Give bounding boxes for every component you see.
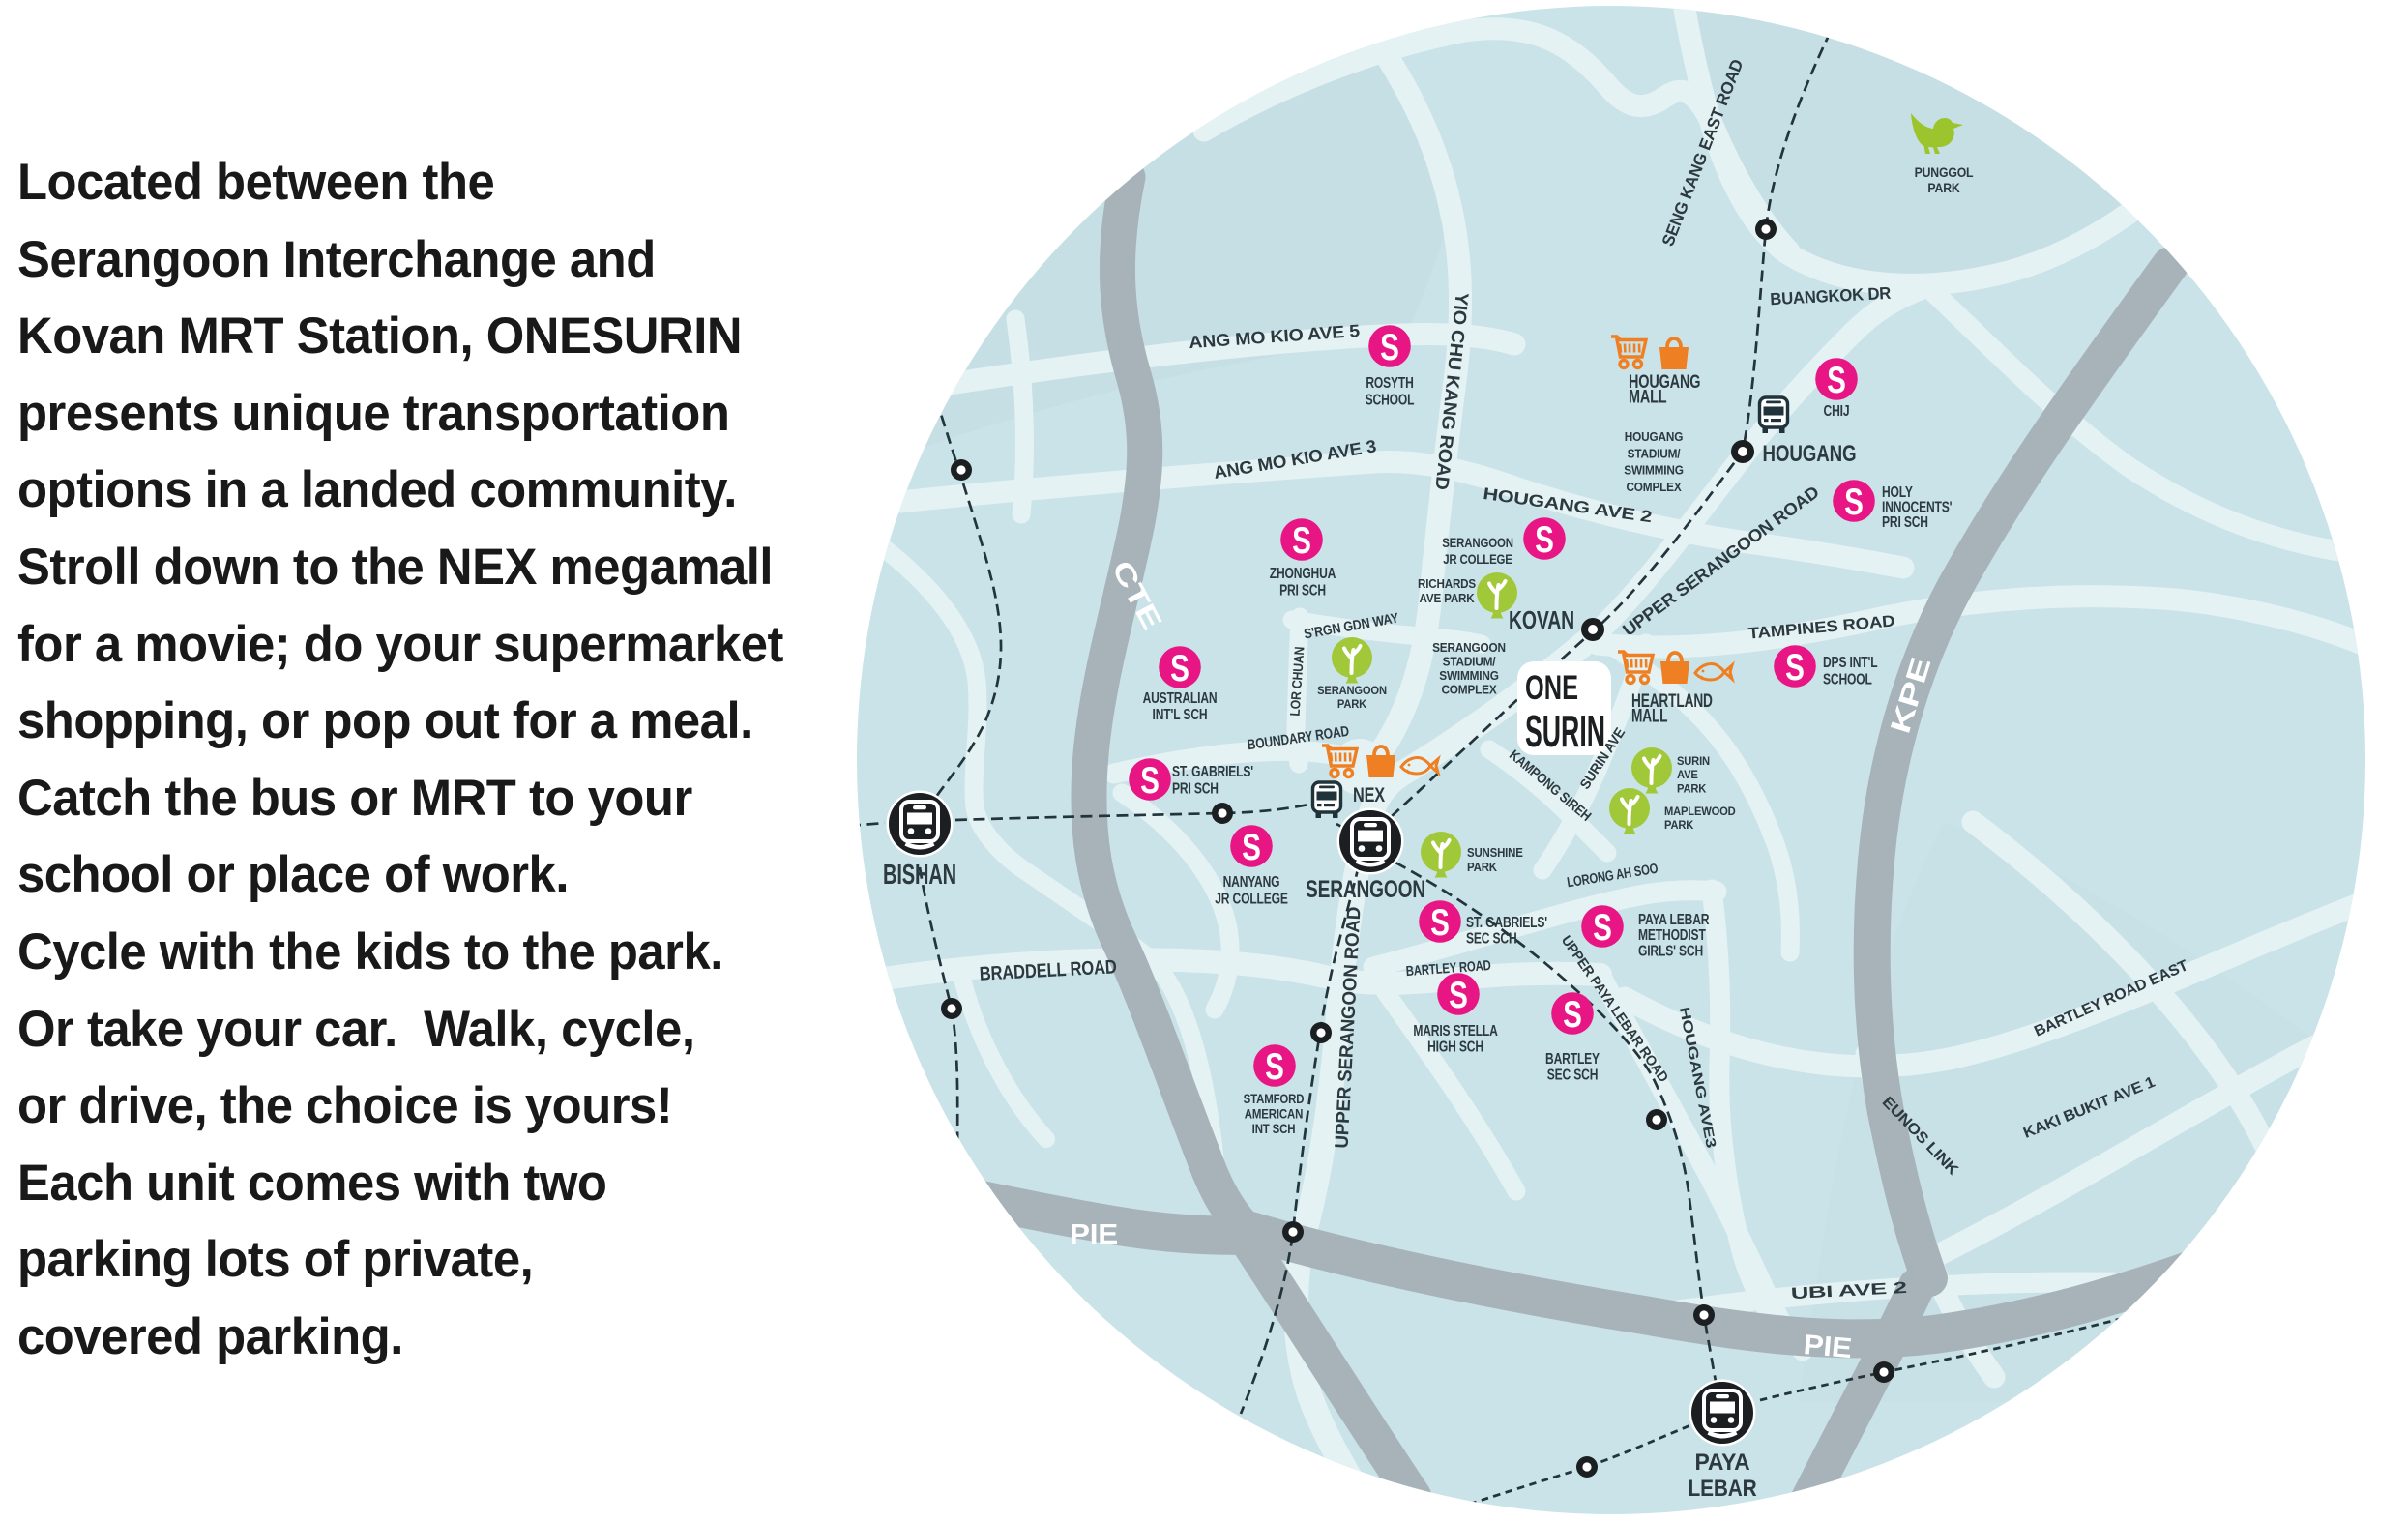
svg-text:SERANGOON: SERANGOON [1306,876,1425,903]
svg-text:LEBAR: LEBAR [1689,1476,1757,1502]
svg-text:ST. GABRIELS': ST. GABRIELS' [1466,914,1547,931]
svg-text:PRI SCH: PRI SCH [1882,513,1928,531]
svg-text:PAYA LEBAR: PAYA LEBAR [1638,911,1709,928]
svg-text:MALL: MALL [1631,705,1667,726]
svg-text:RICHARDS: RICHARDS [1418,576,1476,591]
svg-text:GIRLS' SCH: GIRLS' SCH [1638,942,1703,959]
svg-text:PUNGGOL: PUNGGOL [1915,164,1974,180]
svg-text:INT'L SCH: INT'L SCH [1153,706,1208,723]
svg-text:NEX: NEX [1353,784,1385,806]
svg-text:PRI SCH: PRI SCH [1279,581,1326,599]
svg-text:ONE: ONE [1525,669,1578,707]
svg-text:HOUGANG: HOUGANG [1625,429,1683,444]
svg-text:PIE: PIE [1802,1330,1853,1364]
svg-text:ROSYTH: ROSYTH [1366,374,1413,392]
svg-text:MAPLEWOOD: MAPLEWOOD [1664,805,1736,819]
svg-text:KOVAN: KOVAN [1509,605,1574,634]
svg-text:COMPLEX: COMPLEX [1441,683,1497,697]
svg-text:SWIMMING: SWIMMING [1439,668,1499,683]
svg-text:AMERICAN: AMERICAN [1245,1107,1304,1122]
svg-text:PARK: PARK [1467,860,1497,874]
svg-text:METHODIST: METHODIST [1638,926,1706,944]
svg-text:STAMFORD: STAMFORD [1244,1092,1305,1106]
svg-text:DPS INT'L: DPS INT'L [1823,654,1878,671]
svg-text:SCHOOL: SCHOOL [1823,670,1872,688]
svg-text:BARTLEY: BARTLEY [1545,1050,1600,1068]
svg-text:NANYANG: NANYANG [1223,873,1280,891]
svg-text:MALL: MALL [1629,387,1666,407]
svg-text:AVE PARK: AVE PARK [1420,591,1475,605]
svg-text:SWIMMING: SWIMMING [1624,463,1684,478]
svg-text:SCHOOL: SCHOOL [1366,391,1415,408]
svg-text:PARK: PARK [1927,180,1960,195]
svg-text:SERANGOON: SERANGOON [1317,685,1387,698]
svg-text:SEC SCH: SEC SCH [1547,1066,1599,1083]
svg-text:BISHAN: BISHAN [883,860,956,891]
svg-text:PARK: PARK [1677,782,1707,796]
svg-text:AUSTRALIAN: AUSTRALIAN [1143,689,1218,707]
svg-text:PIE: PIE [1070,1219,1118,1250]
svg-text:CHIJ: CHIJ [1824,402,1850,420]
svg-text:JR COLLEGE: JR COLLEGE [1215,890,1288,907]
svg-text:INT SCH: INT SCH [1252,1122,1296,1136]
svg-text:PRI SCH: PRI SCH [1172,779,1219,797]
svg-text:STADIUM/: STADIUM/ [1443,655,1496,669]
svg-text:SURIN: SURIN [1525,706,1605,756]
svg-text:SERANGOON: SERANGOON [1432,640,1506,655]
svg-text:SEC SCH: SEC SCH [1466,929,1517,947]
svg-text:JR COLLEGE: JR COLLEGE [1443,552,1512,567]
svg-text:AVE: AVE [1677,769,1698,782]
svg-text:SURIN: SURIN [1677,755,1710,769]
svg-text:HOUGANG: HOUGANG [1763,441,1857,467]
svg-text:MARIS STELLA: MARIS STELLA [1413,1022,1497,1039]
svg-text:PAYA: PAYA [1695,1449,1750,1476]
svg-text:SERANGOON: SERANGOON [1442,536,1513,550]
svg-text:STADIUM/: STADIUM/ [1628,447,1681,461]
svg-text:ST. GABRIELS': ST. GABRIELS' [1172,763,1253,780]
svg-text:SUNSHINE: SUNSHINE [1467,845,1523,860]
svg-text:PARK: PARK [1337,698,1367,712]
svg-text:ZHONGHUA: ZHONGHUA [1270,565,1336,582]
svg-text:COMPLEX: COMPLEX [1626,480,1682,494]
svg-text:HIGH SCH: HIGH SCH [1427,1038,1483,1055]
svg-text:PARK: PARK [1664,819,1694,833]
